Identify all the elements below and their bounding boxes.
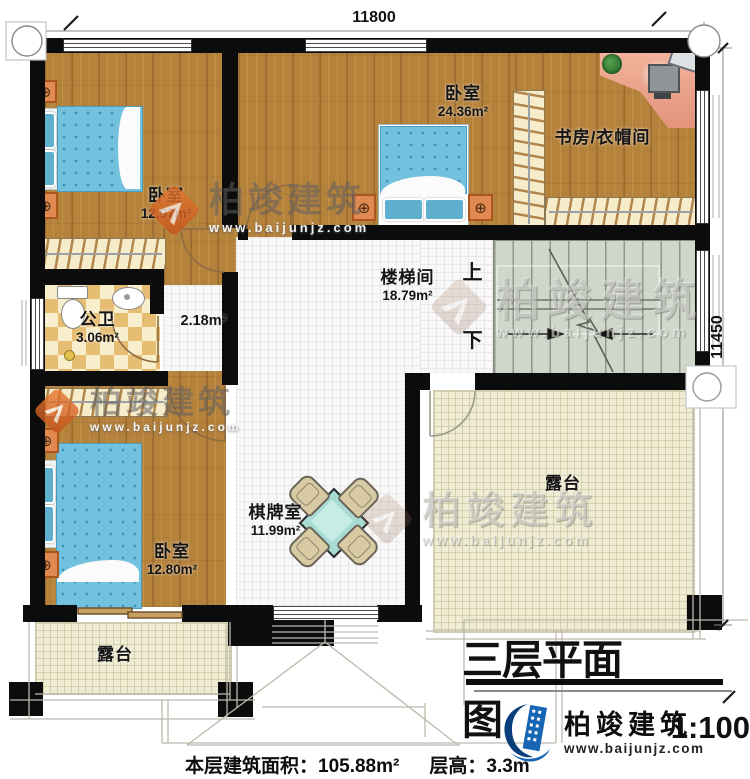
bed-sheet-fold xyxy=(118,107,140,189)
dimension-top: 11800 xyxy=(338,9,410,27)
room-area: 12.97m² xyxy=(116,206,216,222)
window xyxy=(696,250,709,352)
room-label-terrace-bottom: 露台 xyxy=(70,645,160,665)
wardrobe xyxy=(34,388,168,417)
nightstand: ⊕ xyxy=(352,194,376,221)
room-label-stairwell: 楼梯间 18.79m² xyxy=(355,268,460,304)
window xyxy=(696,90,709,224)
window xyxy=(305,39,427,52)
wall-interior xyxy=(150,269,164,314)
terrace-pillar xyxy=(9,682,43,716)
porch-pillar-block xyxy=(228,618,334,646)
room-area: 11.99m² xyxy=(228,523,323,539)
room-area: 2.18m² xyxy=(166,313,241,330)
room-label-bedroom-bottom-left: 卧室 12.80m² xyxy=(122,542,222,578)
sink-drain xyxy=(124,294,130,300)
terrace-pillar xyxy=(218,682,253,717)
closet-strip xyxy=(513,90,545,228)
room-label-bedroom-top-left: 卧室 12.97m² xyxy=(116,186,216,222)
footer-stats: 本层建筑面积：105.88m²层高：3.3m xyxy=(185,751,530,778)
window xyxy=(63,39,192,52)
room-label-game-room: 棋牌室 11.99m² xyxy=(228,503,323,539)
room-label-study-cloakroom: 书房/衣帽间 xyxy=(535,128,670,148)
floor-drain xyxy=(64,350,75,361)
wall-interior xyxy=(377,605,422,622)
bed-mattress xyxy=(56,443,142,609)
floor-height-value: 3.3m xyxy=(486,756,529,777)
wardrobe xyxy=(34,238,166,270)
room-label-bathroom: 公卫 3.06m² xyxy=(50,310,145,346)
room-name: 卧室 xyxy=(122,542,222,562)
floor-area-label: 本层建筑面积： xyxy=(185,756,318,777)
wall-interior xyxy=(23,605,77,622)
room-area: 24.36m² xyxy=(413,104,513,120)
wall-interior xyxy=(222,52,238,228)
wall-interior xyxy=(475,373,710,390)
title-underline-thin xyxy=(474,690,732,692)
room-label-hallway: 2.18m² xyxy=(166,313,241,330)
window xyxy=(273,606,379,620)
stairs-flight xyxy=(493,240,697,375)
room-name: 卧室 xyxy=(116,186,216,206)
wall-interior xyxy=(238,225,248,240)
floor-plan-page: ⊕ ⊕ ⊕ ⊕ ⊕ ⊕ xyxy=(0,0,750,779)
room-name: 公卫 xyxy=(50,310,145,330)
stairs-up-label: 上 xyxy=(458,262,488,286)
room-name: 楼梯间 xyxy=(355,268,460,288)
toilet-tank xyxy=(57,286,88,299)
bed-pillow xyxy=(383,198,424,221)
window xyxy=(31,298,44,370)
nightstand: ⊕ xyxy=(468,194,493,221)
title-underline-thick xyxy=(466,679,723,685)
wall-interior xyxy=(30,269,163,285)
room-area: 12.80m² xyxy=(122,562,222,578)
brand-name: 柏竣建筑 xyxy=(564,711,705,741)
brand-url: www.baijunjz.com xyxy=(564,741,705,756)
room-name: 露台 xyxy=(518,474,608,494)
room-area: 3.06m² xyxy=(50,330,145,346)
wardrobe xyxy=(545,197,697,227)
floor-terrace-right xyxy=(433,390,695,633)
wall-interior xyxy=(30,371,168,386)
room-name: 书房/衣帽间 xyxy=(535,128,670,148)
dimension-right: 11450 xyxy=(709,301,727,373)
terrace-pillar xyxy=(687,595,722,630)
room-name: 露台 xyxy=(70,645,160,665)
monitor-base xyxy=(654,93,671,99)
room-label-terrace-right: 露台 xyxy=(518,474,608,494)
wall-interior xyxy=(405,388,420,620)
computer-monitor xyxy=(648,64,680,93)
floor-height-label: 层高： xyxy=(429,756,486,777)
bed-pillow xyxy=(424,198,465,221)
wall-interior xyxy=(292,225,710,240)
room-area: 18.79m² xyxy=(355,288,460,304)
room-name: 棋牌室 xyxy=(228,503,323,523)
stairs-down-label: 下 xyxy=(458,330,488,354)
room-label-bedroom-top: 卧室 24.36m² xyxy=(413,84,513,120)
floor-area-value: 105.88m² xyxy=(318,756,399,777)
wall-interior xyxy=(405,373,430,390)
room-name: 卧室 xyxy=(413,84,513,104)
plant xyxy=(602,54,622,74)
